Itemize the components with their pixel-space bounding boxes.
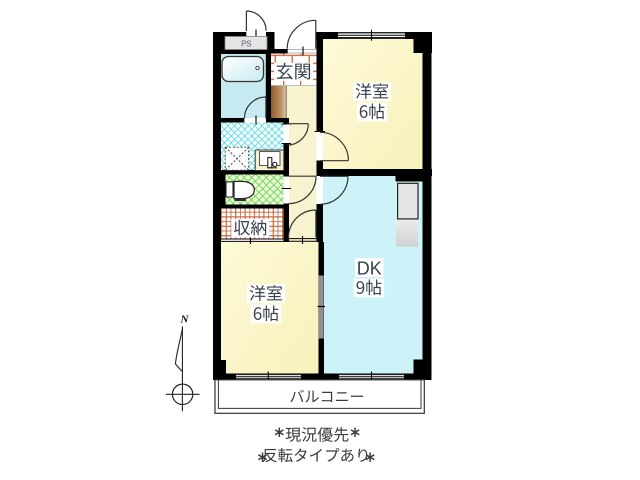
svg-text:N: N: [180, 314, 190, 326]
svg-text:PS: PS: [241, 40, 251, 49]
svg-text:DK: DK: [357, 258, 382, 278]
